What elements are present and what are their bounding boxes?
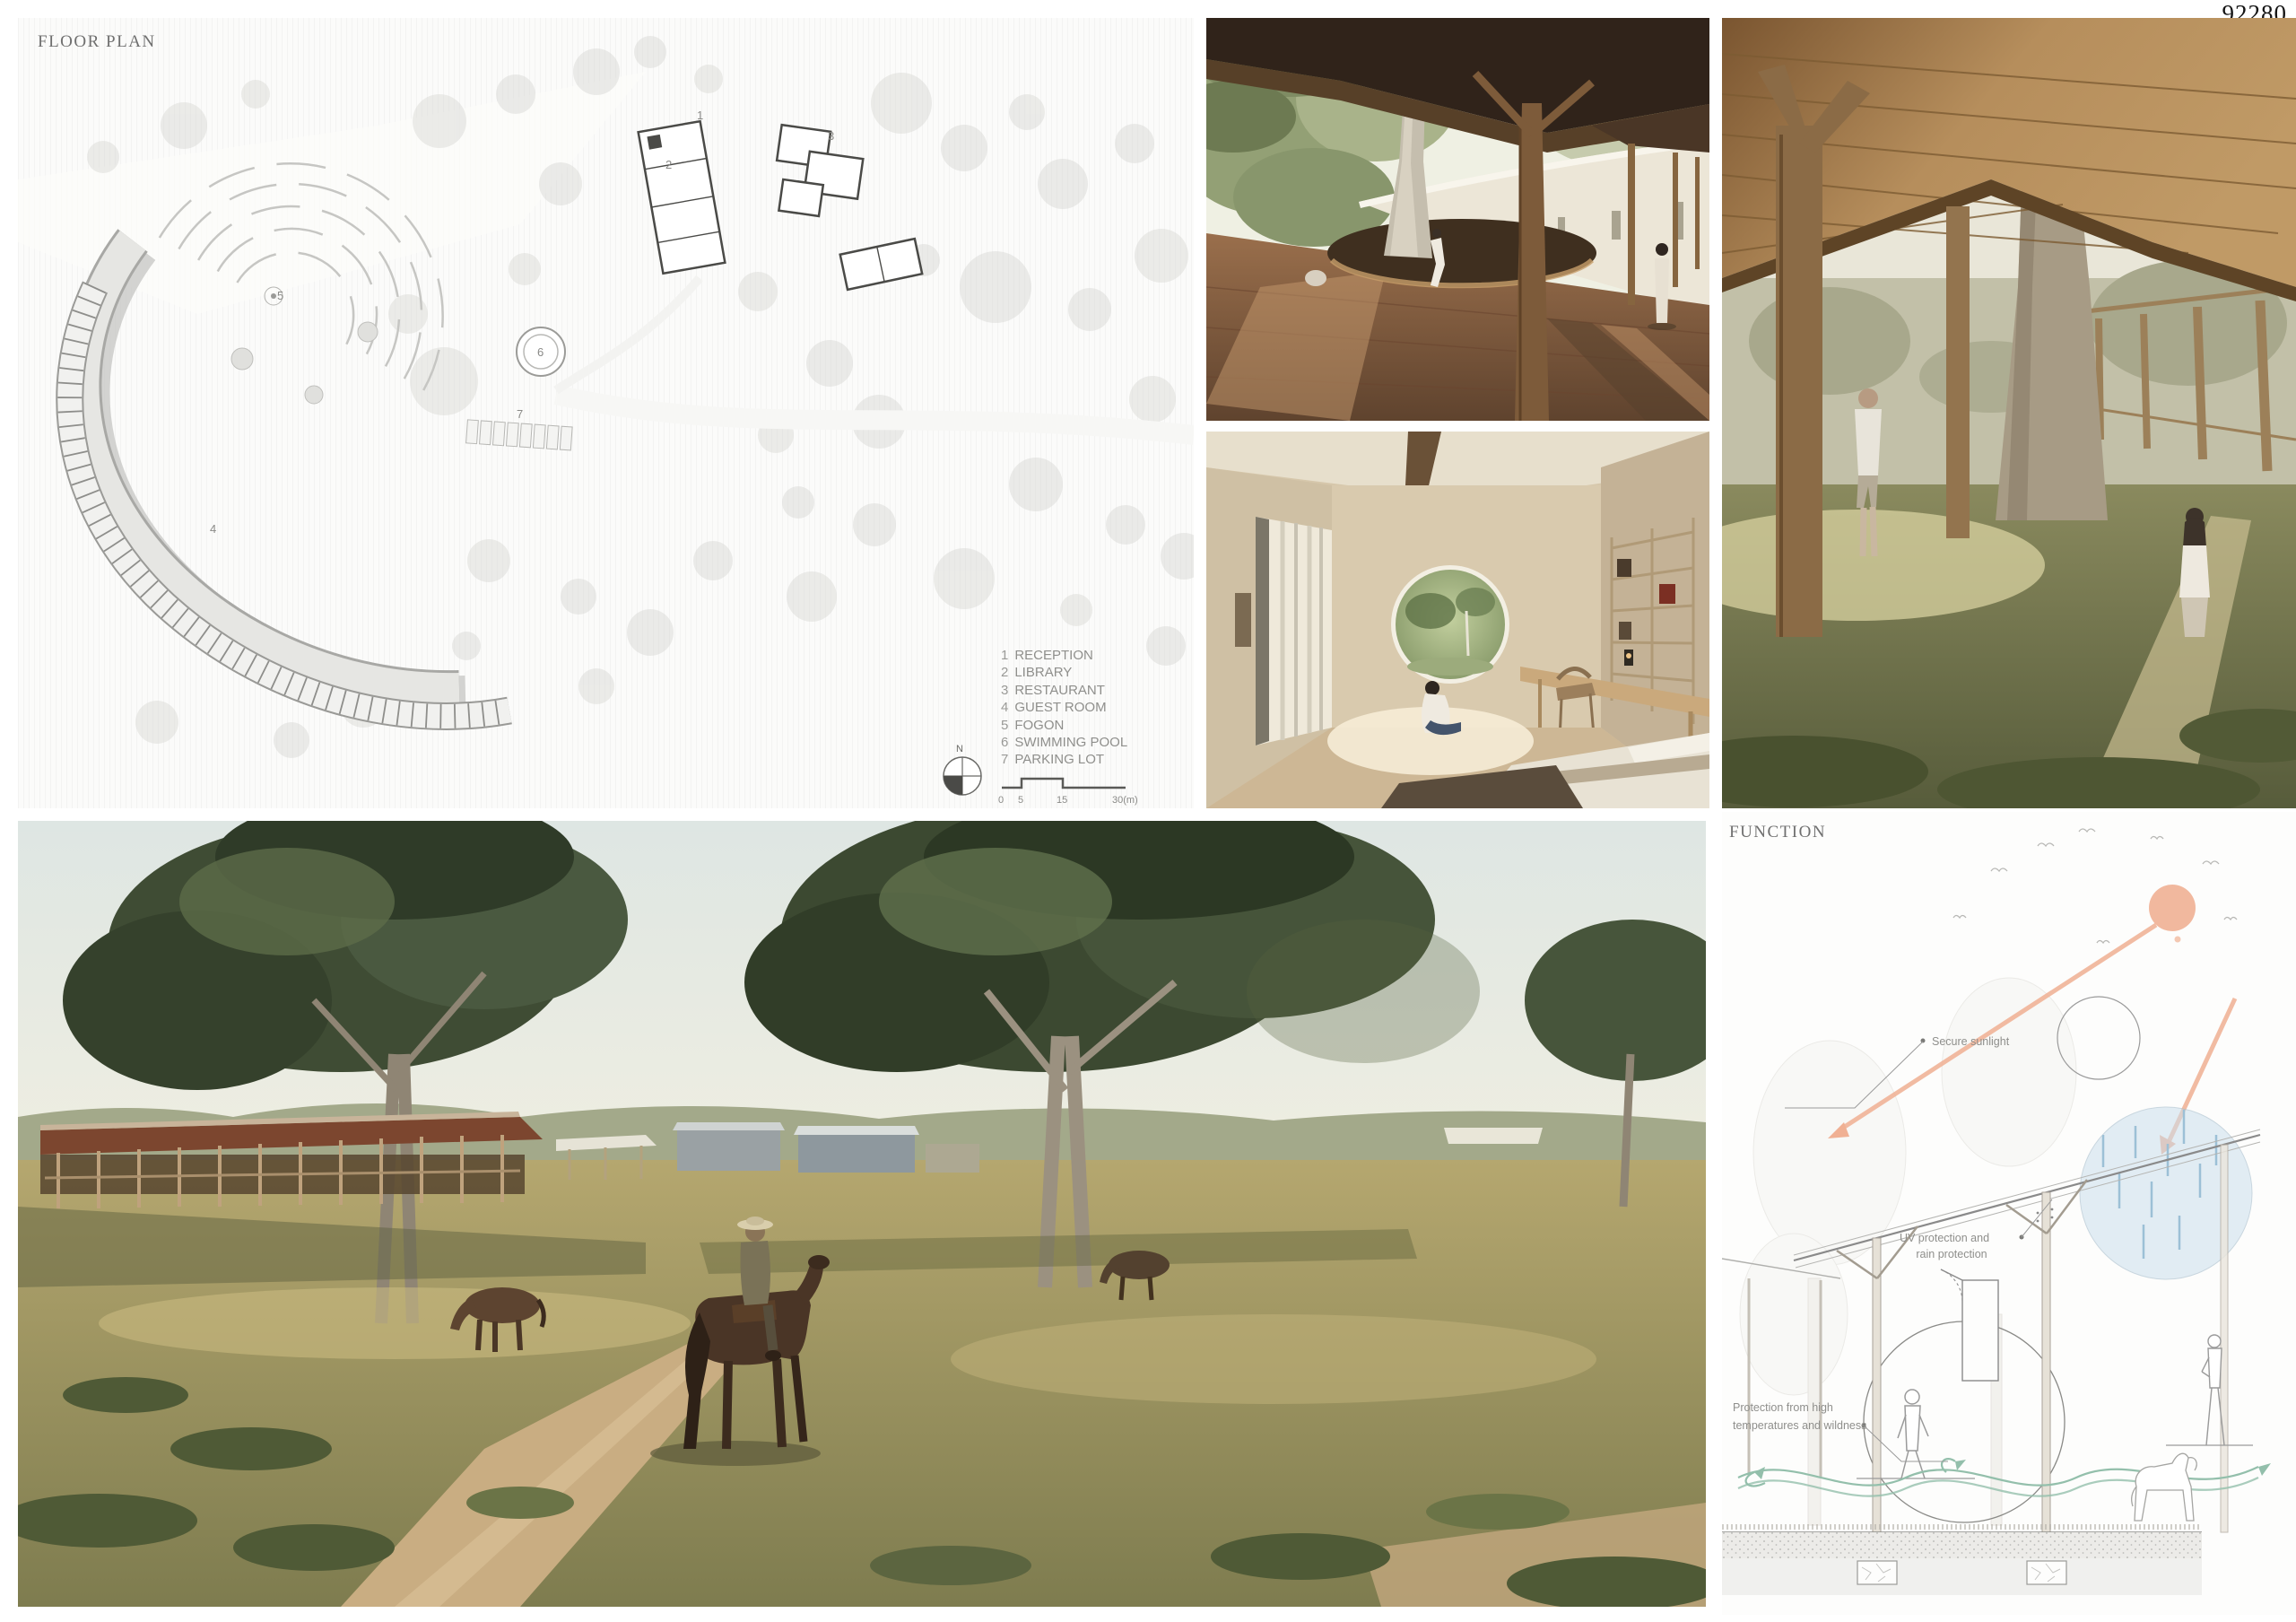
svg-text:N: N [956, 744, 963, 754]
render-courtyard-walkway [1206, 18, 1709, 421]
scale-bar: 0 5 15 30(m) [998, 779, 1138, 806]
function-title: FUNCTION [1729, 823, 1826, 842]
landscape-render-image [18, 821, 1706, 1607]
annotation-protection-line1: Protection from high [1733, 1401, 1833, 1414]
annotation-secure-sunlight: Secure sunlight [1932, 1035, 2010, 1048]
function-diagram-drawing: Secure sunlight UV protection and rain p… [1722, 812, 2296, 1615]
svg-text:5: 5 [1018, 795, 1023, 806]
svg-text:0: 0 [998, 795, 1004, 806]
legend-item: 4GUEST ROOM [1001, 699, 1127, 716]
circular-window [1391, 565, 1509, 684]
svg-text:5: 5 [277, 289, 283, 302]
svg-text:6: 6 [537, 345, 544, 359]
annotation-uv-line2: rain protection [1916, 1248, 1987, 1260]
plan-parking-lot [466, 420, 573, 450]
render-guest-room-interior [1206, 432, 1709, 808]
plan-restaurant-building [770, 125, 865, 221]
walking-person-right [2166, 1335, 2253, 1445]
svg-text:1: 1 [697, 109, 703, 122]
legend-item: 2LIBRARY [1001, 664, 1127, 681]
svg-text:4: 4 [210, 522, 216, 536]
floor-plan-legend: 1RECEPTION 2LIBRARY 3RESTAURANT 4GUEST R… [1001, 647, 1127, 769]
sun-icon [2149, 885, 2196, 943]
legend-item: 3RESTAURANT [1001, 682, 1127, 699]
svg-text:7: 7 [517, 407, 523, 421]
presentation-board: 92280 [0, 0, 2296, 1622]
render-canopy-plaza [1722, 18, 2296, 808]
plan-reception-building [639, 121, 726, 274]
interior-render-image [1206, 432, 1709, 808]
left-pavilion [40, 1112, 543, 1208]
courtyard-tree-pit [1327, 219, 1596, 287]
legend-item: 7PARKING LOT [1001, 751, 1127, 768]
floor-plan-title: FLOOR PLAN [38, 32, 156, 52]
birds-icon [1953, 829, 2237, 943]
legend-item: 6SWIMMING POOL [1001, 734, 1127, 751]
plan-fogon-center [231, 287, 378, 404]
horse-outline-icon [2132, 1453, 2197, 1521]
section-door [1941, 1269, 1998, 1381]
canopy-render-image [1722, 18, 2296, 808]
svg-text:30(m): 30(m) [1112, 795, 1138, 806]
legend-item: 5FOGON [1001, 717, 1127, 734]
legend-item: 1RECEPTION [1001, 647, 1127, 664]
svg-text:2: 2 [665, 158, 672, 171]
annotation-uv-line1: UV protection and [1900, 1232, 1989, 1244]
plan-path [556, 278, 700, 390]
wall-niche [1235, 593, 1251, 647]
svg-text:3: 3 [828, 129, 834, 143]
floor-plan-panel: 1 2 3 4 5 6 7 N 0 5 [18, 18, 1194, 808]
courtyard-render-image [1206, 18, 1709, 421]
photo-ranch-horseback [18, 821, 1706, 1607]
function-diagram-panel: Secure sunlight UV protection and rain p… [1722, 812, 2296, 1615]
annotation-protection-line2: temperatures and wildness [1733, 1419, 1866, 1432]
section-ground [1722, 1527, 2202, 1595]
plan-service-building [840, 239, 922, 290]
north-arrow-icon: N [944, 744, 981, 795]
svg-text:15: 15 [1057, 795, 1067, 806]
